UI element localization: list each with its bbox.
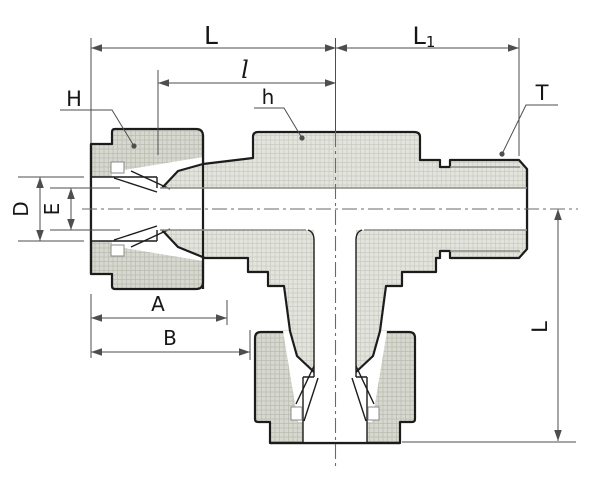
dim-branch-to-end: L1 xyxy=(336,22,519,51)
label-thread: T xyxy=(502,81,558,154)
bottom-nut-relief-notch-left xyxy=(291,407,302,420)
left-nut-relief-notch-top xyxy=(111,162,124,173)
dim-branch-offset-label: B xyxy=(163,326,177,350)
bottom-nut-relief-notch-right xyxy=(368,407,379,420)
dim-branch-length-label: L xyxy=(528,321,552,333)
dim-nut-length-label: A xyxy=(151,292,165,316)
tee-fitting-section-drawing: L L1 l H h T D xyxy=(0,0,603,485)
label-thread-text: T xyxy=(535,81,549,105)
technical-drawing-canvas: L L1 l H h T D xyxy=(0,0,603,485)
dim-nut-length: A xyxy=(91,292,227,318)
dim-hole-diameter-label: D xyxy=(9,201,33,216)
dim-branch-to-end-label: L1 xyxy=(413,22,436,51)
dim-tube-insertion: l xyxy=(158,56,336,84)
label-nut-hex-text: H xyxy=(66,87,82,111)
label-body-hex: h xyxy=(254,85,302,138)
dim-branch-offset: B xyxy=(91,326,250,352)
dim-tube-insertion-label: l xyxy=(241,56,249,84)
dim-hole-diameter: D xyxy=(9,177,40,241)
left-nut-relief-notch-bottom xyxy=(111,245,124,256)
dim-run-length: L xyxy=(91,21,336,50)
dim-bore-diameter-label: E xyxy=(40,203,64,216)
label-body-hex-text: h xyxy=(262,85,275,109)
dim-run-length-label: L xyxy=(204,21,218,50)
dim-bore-diameter: E xyxy=(40,188,71,230)
dim-branch-length: L xyxy=(528,209,558,441)
fitting-cross-section xyxy=(91,129,527,443)
